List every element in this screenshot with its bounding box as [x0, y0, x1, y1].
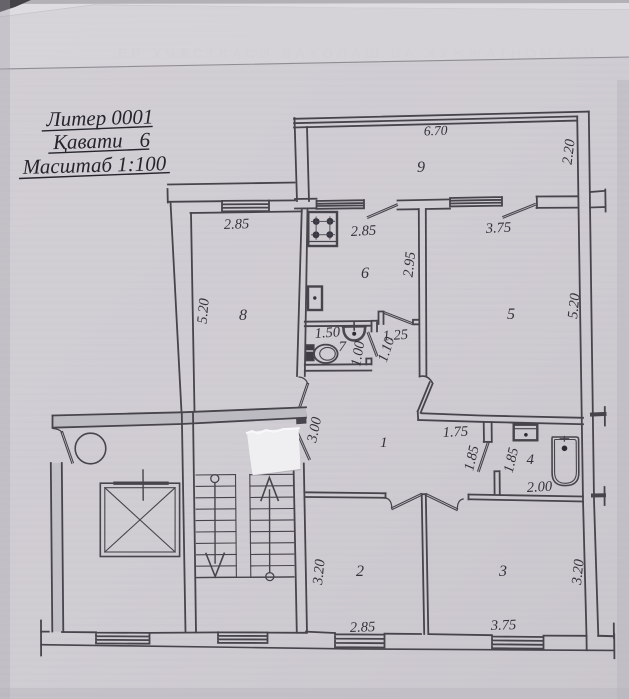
svg-text:2.95: 2.95	[401, 251, 420, 278]
svg-text:8: 8	[239, 307, 247, 324]
svg-text:3.20: 3.20	[310, 558, 329, 587]
svg-text:1: 1	[380, 435, 388, 451]
svg-text:2.85: 2.85	[350, 223, 376, 240]
svg-text:5.20: 5.20	[195, 297, 213, 324]
svg-text:5.20: 5.20	[565, 292, 584, 320]
svg-text:6.70: 6.70	[424, 123, 448, 139]
svg-text:4: 4	[527, 452, 535, 468]
svg-text:1.75: 1.75	[442, 424, 468, 441]
svg-text:9: 9	[417, 159, 425, 176]
svg-text:Масштаб 1:100: Масштаб 1:100	[21, 151, 167, 179]
svg-text:5: 5	[507, 306, 515, 323]
svg-text:2.20: 2.20	[560, 138, 579, 166]
svg-text:3: 3	[498, 563, 507, 580]
svg-text:6: 6	[361, 265, 369, 282]
svg-text:2.85: 2.85	[350, 619, 376, 636]
svg-text:2.85: 2.85	[224, 216, 250, 233]
svg-text:2: 2	[356, 563, 364, 580]
svg-text:2.00: 2.00	[526, 479, 553, 496]
svg-text:1.50: 1.50	[314, 324, 341, 342]
svg-text:3.20: 3.20	[569, 558, 588, 587]
svg-text:3.75: 3.75	[484, 220, 511, 237]
svg-text:3.75: 3.75	[490, 617, 517, 634]
